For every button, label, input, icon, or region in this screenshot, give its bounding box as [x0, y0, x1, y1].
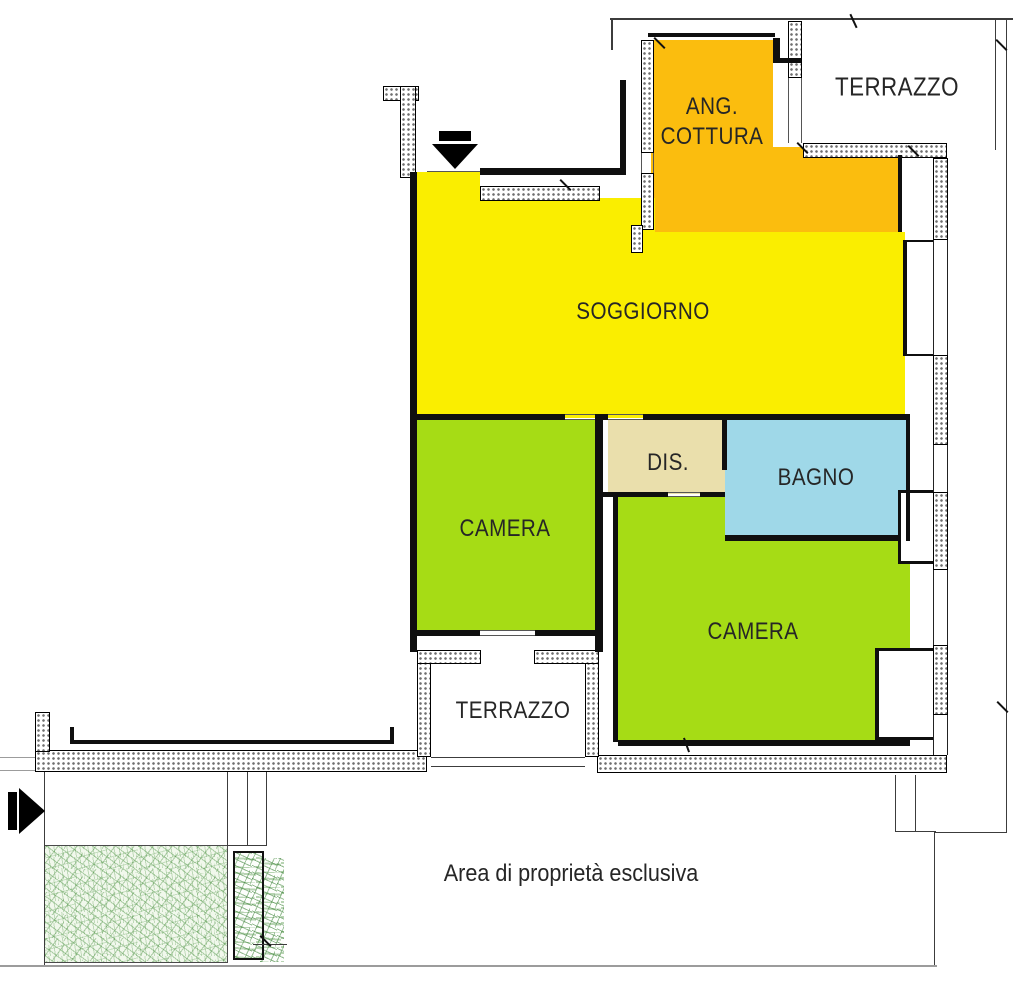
window-recess-bagno — [898, 490, 935, 564]
exterior-wall — [631, 225, 643, 253]
step-line — [915, 775, 916, 832]
room-label-ang-cottura-line2: COTTURA — [661, 122, 764, 152]
step-line — [266, 772, 267, 845]
wall-segment — [648, 33, 775, 37]
boundary-line — [935, 832, 1006, 833]
door-threshold — [427, 171, 480, 172]
entrance-arrow-icon — [432, 144, 478, 169]
room-label-ang-cottura-line1: ANG. — [661, 92, 764, 122]
exterior-wall — [933, 645, 948, 715]
exterior-wall — [35, 750, 427, 772]
exterior-wall — [534, 650, 599, 664]
exterior-wall — [597, 755, 947, 773]
door-swing-tick — [849, 14, 857, 28]
exterior-wall — [417, 650, 431, 757]
window-opening — [933, 570, 948, 645]
room-label-ang-cottura: ANG. COTTURA — [661, 92, 764, 152]
parapet-line — [995, 18, 996, 150]
room-label-dis: DIS. — [647, 449, 689, 477]
room-label-camera-right: CAMERA — [708, 618, 799, 646]
wall-segment — [417, 630, 480, 636]
wall-segment — [417, 414, 565, 420]
window-opening — [933, 445, 948, 492]
exterior-wall — [803, 143, 947, 158]
garden-area — [44, 845, 228, 963]
entrance-arrow-icon — [439, 131, 471, 141]
wall-segment — [643, 414, 910, 420]
boundary-line — [611, 18, 613, 50]
door-threshold — [608, 414, 643, 415]
window-recess-camera — [875, 648, 935, 740]
door-threshold — [608, 419, 643, 420]
exterior-wall — [788, 21, 802, 78]
exterior-wall — [35, 712, 50, 752]
room-label-terrazzo-bottom: TERRAZZO — [456, 697, 571, 725]
court-edge-line — [390, 727, 394, 744]
step-line — [227, 845, 267, 846]
wall-segment — [613, 494, 618, 742]
wall-segment — [535, 630, 599, 636]
exterior-wall — [641, 173, 654, 230]
window-opening — [933, 240, 948, 355]
door-threshold — [668, 492, 700, 493]
terrace-railing-line — [431, 757, 585, 758]
door-threshold — [668, 496, 700, 497]
court-edge-line — [70, 727, 74, 744]
exterior-wall — [585, 650, 599, 757]
wall-segment — [595, 418, 603, 652]
door-threshold — [480, 635, 535, 636]
terrace-railing-line — [431, 766, 585, 767]
access-arrow-icon — [8, 792, 17, 830]
wall-continuation-line — [0, 757, 35, 758]
window-opening — [933, 715, 948, 755]
wall-segment — [480, 168, 626, 175]
door-opening-line — [788, 78, 789, 143]
boundary-line — [934, 832, 935, 966]
court-edge-line — [70, 740, 394, 744]
room-label-camera-left: CAMERA — [460, 515, 551, 543]
step-line — [227, 772, 228, 845]
door-opening-line — [801, 78, 802, 143]
window-recess-soggiorno — [903, 240, 934, 356]
wall-continuation-line — [0, 770, 35, 771]
room-label-soggiorno: SOGGIORNO — [576, 298, 709, 326]
wall-segment — [906, 420, 910, 541]
exterior-wall — [480, 186, 600, 201]
door-opening-line — [641, 153, 642, 173]
wall-segment — [722, 420, 727, 470]
room-label-bagno: BAGNO — [778, 464, 855, 492]
wall-segment — [620, 80, 626, 175]
exterior-wall — [417, 650, 481, 664]
door-threshold — [565, 414, 595, 415]
door-threshold — [480, 630, 535, 631]
parapet-line — [1006, 18, 1007, 150]
wall-segment — [700, 492, 725, 497]
wall-segment — [898, 155, 902, 232]
step-line — [895, 831, 936, 832]
exclusive-area-label: Area di proprietà esclusiva — [444, 860, 699, 888]
room-fill-ang-cottura-lower — [651, 147, 898, 232]
room-label-terrazzo-top: TERRAZZO — [835, 72, 959, 103]
exterior-wall — [933, 158, 948, 240]
access-arrow-icon — [19, 788, 45, 834]
wall-segment — [618, 740, 910, 746]
exterior-wall — [933, 492, 948, 570]
exterior-wall — [400, 86, 416, 178]
ground-line — [0, 965, 937, 967]
step-line — [247, 772, 248, 845]
boundary-line-right — [1006, 150, 1007, 833]
step-line — [895, 775, 896, 832]
wall-segment — [603, 492, 668, 497]
wall-segment — [410, 172, 417, 652]
boundary-line-top — [610, 18, 1013, 20]
wall-segment — [773, 58, 801, 63]
exterior-wall — [933, 355, 948, 445]
door-threshold — [565, 419, 595, 420]
wall-segment — [725, 535, 900, 541]
exterior-wall — [641, 40, 654, 153]
door-opening-line — [653, 153, 654, 173]
floor-plan: TERRAZZO ANG. COTTURA SOGGIORNO DIS. BAG… — [0, 0, 1024, 983]
